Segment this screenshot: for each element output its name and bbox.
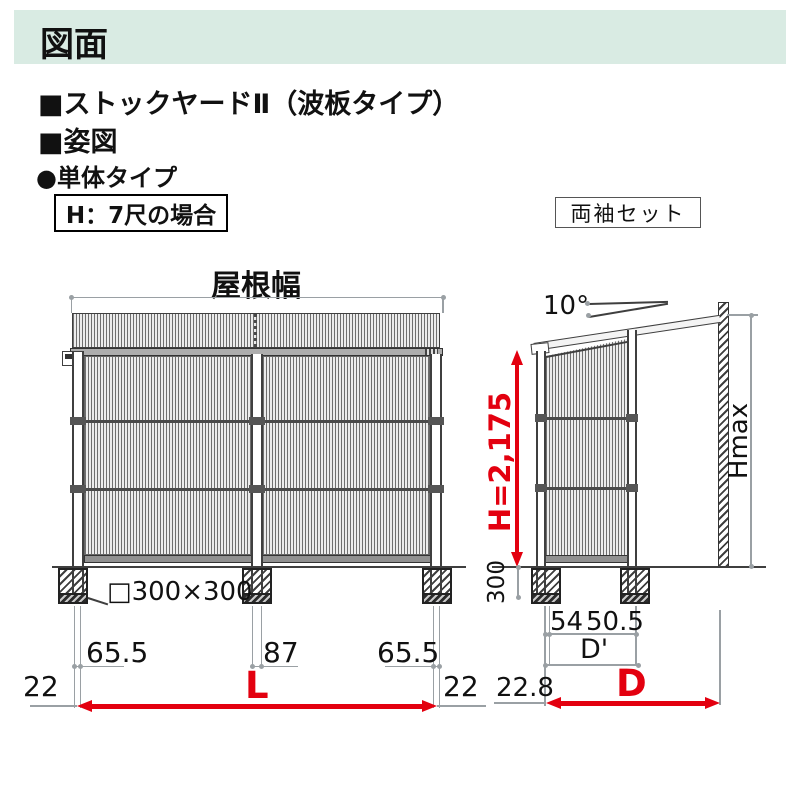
height-dim-label: H=2,175: [485, 387, 515, 537]
side-panel: [546, 337, 627, 562]
roof-angle-label: 10°: [543, 291, 589, 321]
arrowhead-right: [705, 697, 720, 709]
rail-connector: [249, 485, 265, 493]
footing-side-front: [531, 568, 561, 604]
height-spec-box: H：7尺の場合: [54, 194, 228, 232]
dim-dot: [437, 664, 442, 669]
rail-connector: [70, 485, 86, 493]
footing-hatch: [531, 568, 561, 595]
dim-line: [517, 567, 518, 597]
drawing-title-bar: [14, 10, 786, 64]
roof-width-label: 屋根幅: [211, 261, 301, 305]
footing-hatch: [620, 568, 650, 595]
dim-line: [30, 705, 77, 706]
rail-connector: [535, 414, 547, 422]
extension-line: [442, 299, 443, 313]
footing-base: [620, 595, 650, 604]
front-panel-right: [262, 356, 430, 555]
dim-end-right-label: 22: [443, 670, 479, 703]
dim-left-label: 65.5: [86, 636, 148, 669]
red-width-arrow-line: [90, 704, 424, 709]
height-spec-label: H：7尺の場合: [66, 196, 216, 230]
dim-dot: [516, 565, 521, 570]
extension-line: [252, 606, 253, 668]
rail-connector: [626, 414, 638, 422]
dim-dot: [516, 595, 521, 600]
dim-dot: [586, 313, 591, 318]
rail-connector: [626, 484, 638, 492]
depth-symbol-label: D: [616, 662, 647, 705]
dim-line: [494, 702, 546, 703]
product-heading: ■ストックヤードⅡ（波板タイプ）: [38, 82, 459, 121]
dim-dot: [78, 664, 83, 669]
side-bottom-rail: [537, 555, 636, 563]
dim-line: [437, 705, 486, 706]
rail-connector: [428, 417, 444, 425]
dim-dot: [72, 664, 77, 669]
footing-base: [422, 595, 452, 604]
extension-line: [719, 610, 720, 705]
red-height-arrow-line: [515, 362, 519, 554]
embed-dim-label: 300: [482, 552, 512, 612]
front-panel-left: [84, 356, 252, 555]
roof-center-joint: [254, 314, 257, 347]
side-rail-upper: [546, 417, 627, 420]
rail-connector: [535, 484, 547, 492]
view-type-heading: ■姿図: [38, 120, 118, 159]
dim-line: [750, 315, 751, 566]
extension-line: [80, 606, 81, 708]
sleeve-set-box: 両袖セット: [555, 197, 701, 228]
inner-depth-label: D': [580, 634, 608, 665]
footing-side-back: [620, 568, 650, 604]
side-post-back: [627, 330, 637, 604]
foundation-label: □300×300: [107, 577, 253, 607]
footing-front-right: [422, 568, 452, 604]
dim-right-label: 65.5: [377, 636, 439, 669]
page-title: 図面: [40, 17, 108, 66]
footing-base: [531, 595, 561, 604]
extension-line: [74, 606, 75, 708]
width-symbol-label: L: [245, 664, 269, 707]
sleeve-set-label: 両袖セット: [571, 198, 686, 228]
footing-base: [58, 595, 88, 604]
dim-dot: [543, 663, 548, 668]
red-depth-arrow-line: [559, 701, 707, 706]
side-rail-lower: [546, 487, 627, 490]
foundation-leader-line: [88, 597, 108, 605]
dim-end-left-label: 22: [23, 670, 59, 703]
unit-type-label: ●単体タイプ: [36, 158, 177, 193]
dim-dot: [431, 664, 436, 669]
dim-dot: [547, 632, 552, 637]
bracket-mark: [65, 354, 72, 359]
dim-dot: [634, 632, 639, 637]
footing-front-left: [58, 568, 88, 604]
drawing-canvas: 図面 ■ストックヤードⅡ（波板タイプ） ■姿図 ●単体タイプ H：7尺の場合 両…: [0, 0, 800, 800]
footing-hatch: [58, 568, 88, 595]
footing-hatch: [422, 568, 452, 595]
arrowhead-right: [422, 700, 437, 712]
angle-wedge-bottom: [589, 303, 668, 318]
dim-dot: [585, 301, 590, 306]
rail-connector: [428, 485, 444, 493]
roof-width-dim-line: [71, 297, 443, 298]
rail-connector: [70, 417, 86, 425]
dim-dot: [749, 313, 754, 318]
rail-connector: [249, 417, 265, 425]
extension-line: [71, 299, 72, 313]
dim-dot: [749, 564, 754, 569]
